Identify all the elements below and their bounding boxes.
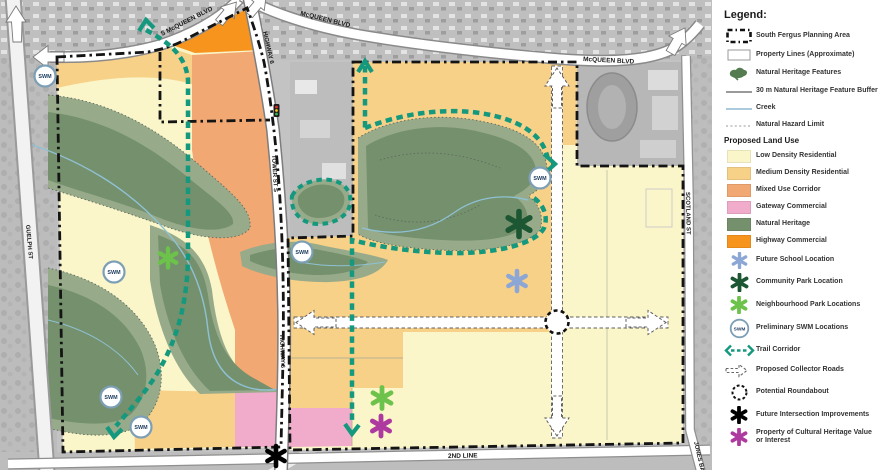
buffer-line-icon	[722, 88, 756, 96]
svg-text:SWM: SWM	[295, 250, 309, 256]
legend-item-natural-heritage: Natural Heritage	[722, 218, 882, 231]
creek-line-icon	[722, 105, 756, 113]
legend-item-buffer: 30 m Natural Heritage Feature Buffer	[722, 85, 882, 98]
svg-text:SWM: SWM	[38, 74, 52, 80]
school-grounds-aerial	[577, 62, 685, 166]
traffic-light-icon	[274, 104, 280, 117]
intersection-improvement-icon	[722, 406, 756, 424]
legend-item-hazard-limit: Natural Hazard Limit	[722, 119, 882, 132]
medium-density-swatch	[727, 167, 751, 180]
natural-heritage-swatch	[727, 218, 751, 231]
legend-item-planning-area: South Fergus Planning Area	[722, 28, 882, 44]
roundabout-icon	[722, 383, 756, 402]
highway-commercial-swatch	[727, 235, 751, 248]
legend-item-trail-corridor: Trail Corridor	[722, 343, 882, 358]
natural-heritage-features-icon	[722, 66, 756, 81]
svg-text:SWM: SWM	[104, 395, 118, 401]
low-density-swatch	[727, 150, 751, 163]
community-park-icon	[722, 273, 756, 292]
potential-roundabout	[546, 311, 569, 334]
property-lines-icon	[722, 48, 756, 62]
legend-item-swm: SWM Preliminary SWM Locations	[722, 318, 882, 339]
legend-panel: Legend: South Fergus Planning Area Prope…	[712, 0, 884, 470]
legend-item-property-lines: Property Lines (Approximate)	[722, 48, 882, 62]
legend-title: Legend:	[724, 9, 882, 21]
legend-item-neighbourhood-park: Neighbourhood Park Locations	[722, 296, 882, 314]
collector-roads-icon	[722, 362, 756, 379]
legend-item-nh-features: Natural Heritage Features	[722, 66, 882, 81]
legend-item-collector-roads: Proposed Collector Roads	[722, 362, 882, 379]
swm-marker: SWM	[35, 66, 56, 87]
gateway-commercial-swatch	[727, 201, 751, 214]
road-label-highway-6-south: HIGHWAY 6	[278, 335, 285, 369]
planning-map-figure: SWM SWM SWM SWM SWM SWM S McQUEEN BLVD M…	[0, 0, 884, 470]
svg-text:SWM: SWM	[533, 176, 547, 182]
hazard-limit-line-icon	[722, 122, 756, 130]
legend-item-highway-commercial: Highway Commercial	[722, 235, 882, 248]
road-label-scotland-st: SCOTLAND ST	[684, 192, 691, 235]
planning-area-boundary-icon	[722, 28, 756, 44]
swm-marker: SWM	[131, 417, 152, 438]
svg-text:SWM: SWM	[733, 326, 745, 332]
future-school-icon	[722, 252, 756, 269]
road-label-2nd-line: 2ND LINE	[448, 452, 478, 460]
trail-corridor-icon	[722, 343, 756, 358]
swm-marker: SWM	[292, 242, 313, 263]
cultural-heritage-icon	[722, 428, 756, 446]
legend-item-creek: Creek	[722, 102, 882, 115]
legend-item-roundabout: Potential Roundabout	[722, 383, 882, 402]
legend-landuse-header: Proposed Land Use	[724, 136, 882, 145]
swm-icon: SWM	[722, 318, 756, 339]
neighbourhood-park-icon	[722, 296, 756, 314]
legend-item-cultural-heritage: Property of Cultural Heritage Value or I…	[722, 428, 882, 446]
svg-text:SWM: SWM	[134, 425, 148, 431]
legend-item-intersection-improvements: Future Intersection Improvements	[722, 406, 882, 424]
legend-item-gateway-commercial: Gateway Commercial	[722, 201, 882, 214]
legend-item-future-school: Future School Location	[722, 252, 882, 269]
swm-marker: SWM	[104, 262, 125, 283]
legend-item-mixed-use: Mixed Use Corridor	[722, 184, 882, 197]
legend-item-low-density: Low Density Residential	[722, 150, 882, 163]
swm-marker: SWM	[530, 168, 551, 189]
gateway-commercial-east	[288, 408, 352, 447]
svg-text:SWM: SWM	[107, 270, 121, 276]
swm-marker: SWM	[101, 387, 122, 408]
legend-item-community-park: Community Park Location	[722, 273, 882, 292]
legend-item-medium-density: Medium Density Residential	[722, 167, 882, 180]
mixed-use-swatch	[727, 184, 751, 197]
